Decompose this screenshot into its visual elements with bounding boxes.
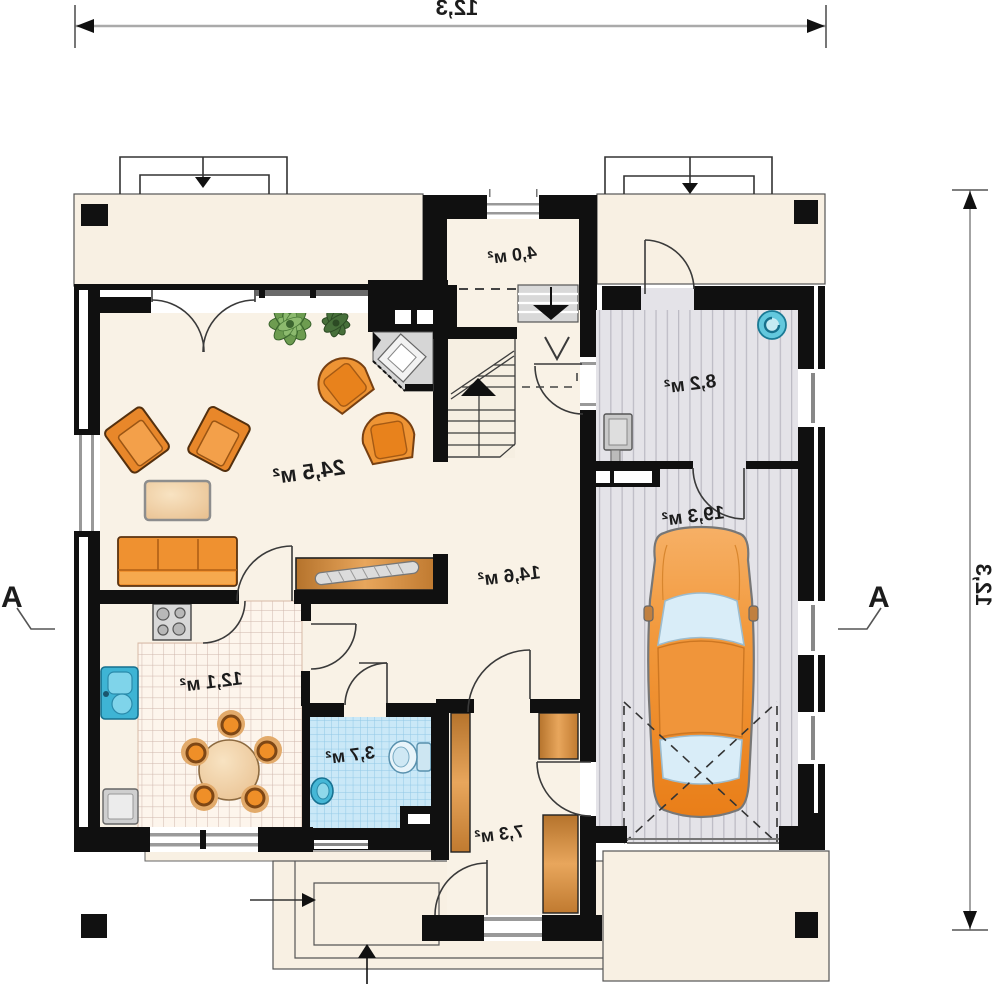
svg-text:12,3: 12,3 [971,564,996,607]
svg-text:A: A [868,581,890,614]
svg-text:A: A [1,581,23,614]
svg-text:12,3: 12,3 [436,0,479,20]
